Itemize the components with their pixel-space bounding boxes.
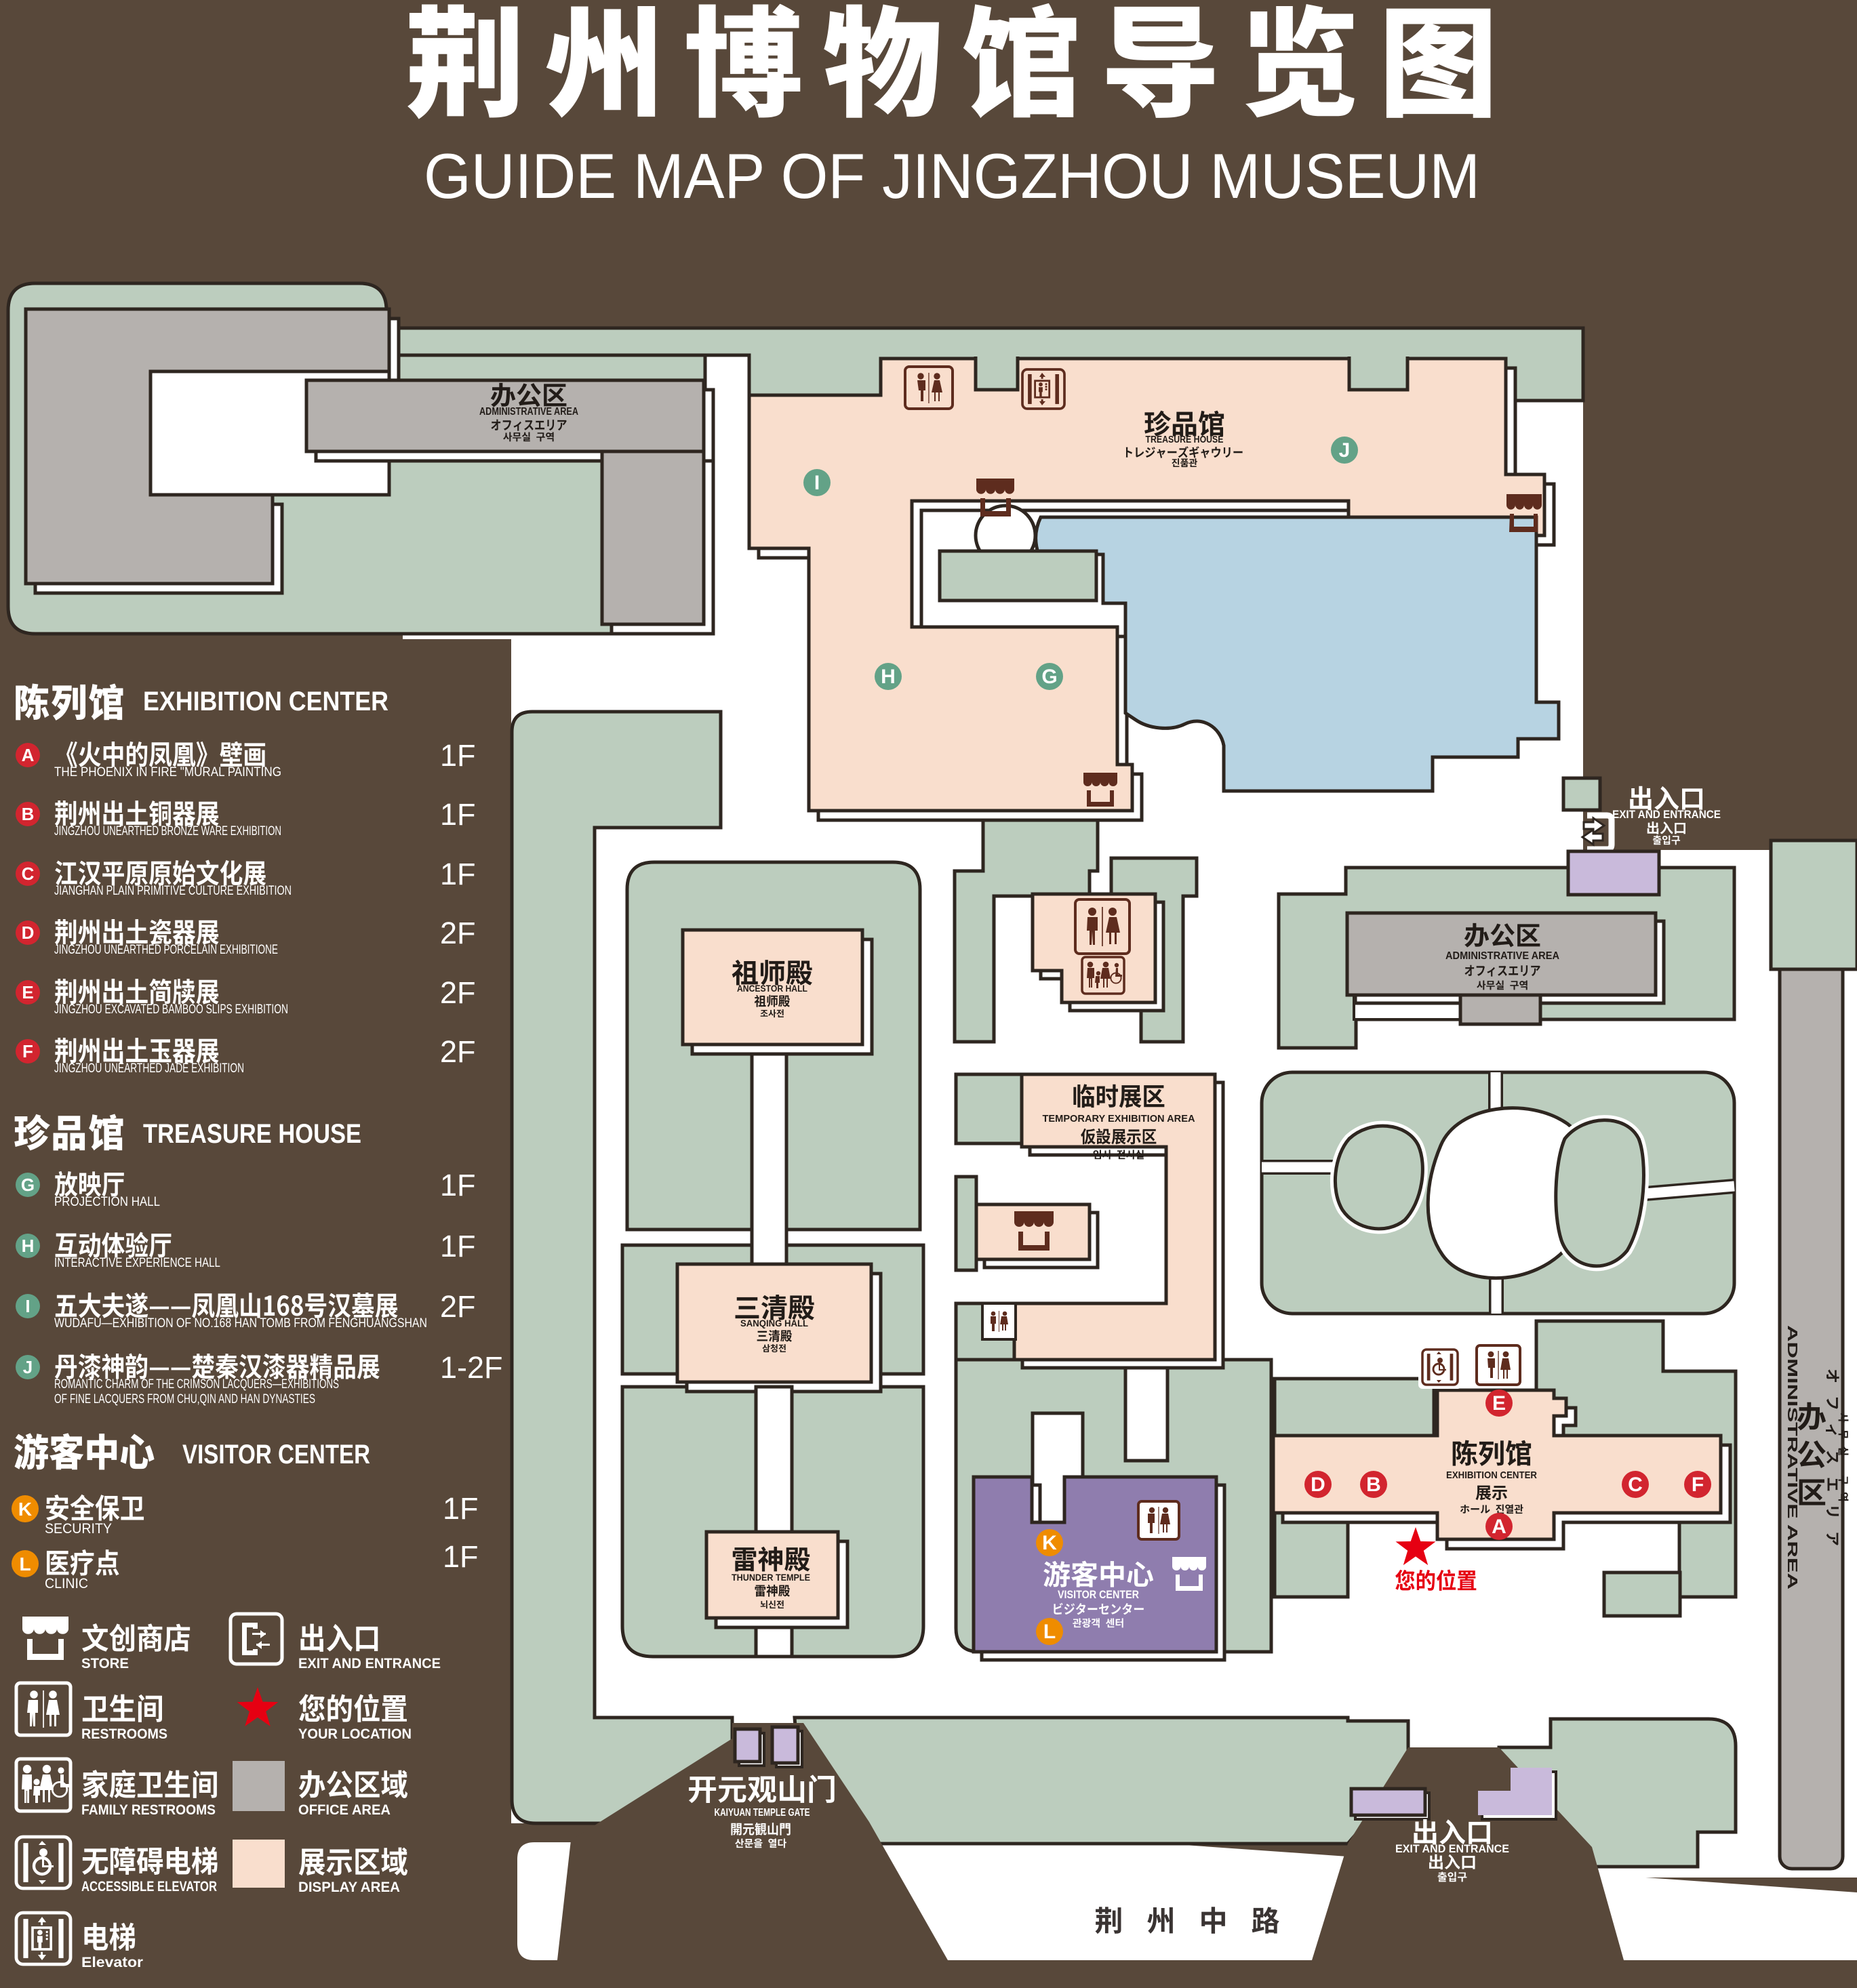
svg-text:PROJECTION HALL: PROJECTION HALL	[54, 1195, 160, 1209]
svg-text:G: G	[21, 1175, 35, 1195]
svg-text:D: D	[1311, 1474, 1325, 1496]
svg-text:B: B	[1366, 1474, 1381, 1496]
svg-text:EXIT AND ENTRANCE: EXIT AND ENTRANCE	[1612, 808, 1721, 821]
svg-text:I: I	[814, 472, 820, 494]
svg-text:CLINIC: CLINIC	[45, 1576, 88, 1591]
svg-text:1F: 1F	[440, 1168, 476, 1202]
svg-text:THE PHOENIX IN FIRE "MURAL PAI: THE PHOENIX IN FIRE "MURAL PAINTING	[54, 765, 281, 779]
svg-text:JIANGHAN PLAIN PRIMITIVE CULTU: JIANGHAN PLAIN PRIMITIVE CULTURE EXHIBIT…	[54, 884, 292, 898]
svg-text:E: E	[1492, 1392, 1506, 1415]
svg-text:1F: 1F	[440, 738, 476, 773]
svg-text:J: J	[23, 1357, 33, 1377]
svg-text:EXIT AND ENTRANCE: EXIT AND ENTRANCE	[1395, 1842, 1509, 1855]
svg-text:YOUR LOCATION: YOUR LOCATION	[298, 1726, 412, 1742]
svg-text:OF FINE LACQUERS FROM CHU,QIN: OF FINE LACQUERS FROM CHU,QIN AND HAN DY…	[54, 1392, 315, 1406]
svg-text:JINGZHOU UNEARTHED JADE EXHIBI: JINGZHOU UNEARTHED JADE EXHIBITION	[54, 1061, 244, 1076]
svg-text:STORE: STORE	[81, 1656, 129, 1671]
svg-text:JINGZHOU UNEARTHED BRONZE WARE: JINGZHOU UNEARTHED BRONZE WARE EXHIBITIO…	[54, 824, 281, 838]
svg-text:K: K	[1042, 1532, 1057, 1554]
svg-text:TREASURE HOUSE: TREASURE HOUSE	[143, 1119, 361, 1149]
svg-text:FAMILY RESTROOMS: FAMILY RESTROOMS	[81, 1802, 216, 1818]
svg-text:VISITOR CENTER: VISITOR CENTER	[1058, 1588, 1139, 1601]
svg-text:C: C	[1628, 1474, 1643, 1496]
svg-text:1F: 1F	[443, 1539, 479, 1574]
svg-text:OFFICE AREA: OFFICE AREA	[298, 1802, 391, 1818]
svg-text:THUNDER TEMPLE: THUNDER TEMPLE	[732, 1572, 810, 1583]
svg-text:1F: 1F	[440, 1229, 476, 1263]
svg-text:JINGZHOU UNEARTHED PORCELAIN E: JINGZHOU UNEARTHED PORCELAIN EXHIBITIONE	[54, 943, 278, 957]
svg-text:ACCESSIBLE ELEVATOR: ACCESSIBLE ELEVATOR	[81, 1879, 217, 1894]
svg-text:JINGZHOU EXCAVATED BAMBOO SLIP: JINGZHOU EXCAVATED BAMBOO SLIPS EXHIBITI…	[54, 1002, 288, 1017]
svg-text:A: A	[22, 745, 35, 765]
svg-text:ADMINISTRATIVE AREA: ADMINISTRATIVE AREA	[479, 406, 578, 418]
svg-text:1F: 1F	[440, 857, 476, 891]
svg-text:F: F	[1692, 1474, 1704, 1496]
svg-text:J: J	[1339, 439, 1351, 462]
svg-text:1F: 1F	[440, 797, 476, 832]
svg-text:ADMINISTRATIVE AREA: ADMINISTRATIVE AREA	[1784, 1325, 1799, 1589]
svg-text:2F: 2F	[440, 1034, 476, 1069]
svg-text:EXIT AND ENTRANCE: EXIT AND ENTRANCE	[298, 1656, 441, 1671]
svg-text:VISITOR CENTER: VISITOR CENTER	[182, 1440, 370, 1469]
svg-text:SANQING HALL: SANQING HALL	[740, 1318, 808, 1328]
svg-text:L: L	[19, 1554, 31, 1575]
svg-text:I: I	[25, 1296, 30, 1316]
svg-text:2F: 2F	[440, 975, 476, 1010]
svg-text:TEMPORARY EXHIBITION AREA: TEMPORARY EXHIBITION AREA	[1043, 1113, 1195, 1124]
svg-text:A: A	[1492, 1516, 1506, 1538]
svg-text:DISPLAY AREA: DISPLAY AREA	[298, 1880, 400, 1895]
svg-text:C: C	[22, 864, 35, 884]
svg-text:INTERACTIVE EXPERIENCE HALL: INTERACTIVE EXPERIENCE HALL	[54, 1256, 220, 1270]
svg-text:Elevator: Elevator	[81, 1955, 143, 1970]
svg-text:TREASURE HOUSE: TREASURE HOUSE	[1146, 434, 1224, 445]
svg-text:F: F	[22, 1041, 33, 1061]
svg-text:GUIDE MAP OF JINGZHOU MUSEUM: GUIDE MAP OF JINGZHOU MUSEUM	[424, 140, 1480, 211]
svg-text:SECURITY: SECURITY	[45, 1521, 112, 1537]
svg-text:ADMINISTRATIVE AREA: ADMINISTRATIVE AREA	[1445, 950, 1559, 962]
svg-text:D: D	[22, 922, 35, 943]
svg-text:1F: 1F	[443, 1491, 479, 1526]
svg-text:2F: 2F	[440, 1289, 476, 1324]
svg-text:KAIYUAN TEMPLE GATE: KAIYUAN TEMPLE GATE	[715, 1807, 810, 1819]
svg-text:EXHIBITION CENTER: EXHIBITION CENTER	[143, 687, 388, 716]
svg-text:L: L	[1043, 1621, 1056, 1643]
svg-text:G: G	[1041, 666, 1057, 688]
svg-text:H: H	[881, 666, 896, 688]
svg-text:E: E	[22, 982, 33, 1002]
svg-text:RESTROOMS: RESTROOMS	[81, 1726, 167, 1742]
svg-text:2F: 2F	[440, 916, 476, 950]
svg-text:K: K	[18, 1499, 32, 1520]
svg-text:ROMANTIC CHARM OF THE CRIMSON: ROMANTIC CHARM OF THE CRIMSON LACQUERS—E…	[54, 1377, 339, 1392]
svg-text:B: B	[22, 804, 35, 824]
svg-text:EXHIBITION CENTER: EXHIBITION CENTER	[1446, 1469, 1537, 1481]
svg-text:WUDAFU—EXHIBITION OF NO.168 HA: WUDAFU—EXHIBITION OF NO.168 HAN TOMB FRO…	[54, 1316, 427, 1331]
svg-text:1-2F: 1-2F	[440, 1350, 503, 1385]
svg-text:H: H	[22, 1236, 35, 1256]
svg-text:ANCESTOR HALL: ANCESTOR HALL	[737, 983, 807, 994]
